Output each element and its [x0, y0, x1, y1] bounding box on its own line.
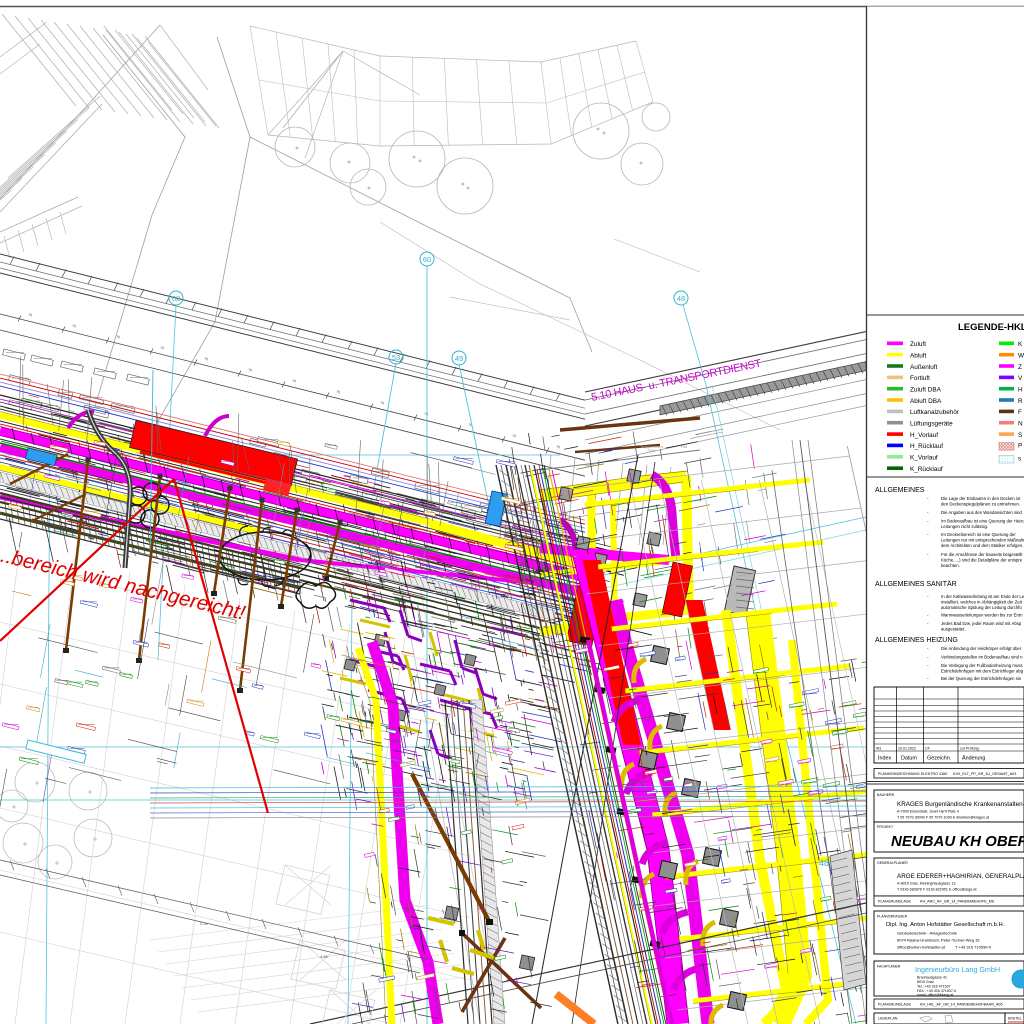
svg-text:H_Rücklauf: H_Rücklauf — [910, 443, 943, 450]
svg-text:K: K — [1018, 341, 1023, 348]
svg-text:ARGE EDERER+HAGHIRIAN, GENERAL: ARGE EDERER+HAGHIRIAN, GENERALPLAN G — [897, 873, 1024, 880]
svg-text:Für die Anschlüsse der bauseit: Für die Anschlüsse der bauseits beigeste… — [941, 552, 1023, 557]
svg-text:Dipl. Ing. Anton Hofstätter Ge: Dipl. Ing. Anton Hofstätter Gesellschaft… — [886, 922, 1005, 928]
svg-text:A-8010 Graz, Reininghausgasse: A-8010 Graz, Reininghausgasse 13 — [897, 882, 955, 886]
svg-text:Gebäudetechnik - Anlagentechni: Gebäudetechnik - Anlagentechnik — [897, 931, 957, 936]
svg-text:V: V — [1018, 375, 1023, 382]
svg-text:Zuluft: Zuluft — [910, 341, 926, 348]
svg-text:Die Lage der Einbauten in den: Die Lage der Einbauten in den Decken ist — [941, 496, 1021, 501]
svg-text:W1: W1 — [876, 747, 881, 751]
svg-text:H_Vorlauf: H_Vorlauf — [910, 432, 938, 439]
svg-text:automatische Spülung der Leitu: automatische Spülung der Leitung durchfü — [941, 605, 1022, 610]
svg-text:LAGEPLAN: LAGEPLAN — [878, 1017, 898, 1021]
svg-text:T +43 316 710590-0: T +43 316 710590-0 — [955, 945, 992, 950]
svg-text:GENERALPLANER: GENERALPLANER — [877, 861, 908, 865]
svg-text:A-7000 Eisenstadt, Josef Hyrtl: A-7000 Eisenstadt, Josef Hyrtl Platz 4 — [897, 810, 959, 814]
svg-text:49: 49 — [455, 354, 463, 363]
svg-text:Bei der Querung der Estrichdeh: Bei der Querung der Estrichdehnfugen sin — [941, 676, 1022, 681]
svg-text:Leitungen nur mit entsprechend: Leitungen nur mit entsprechenden Maßnahm — [941, 537, 1024, 542]
svg-text:LEGENDE-HKLS: LEGENDE-HKLS — [958, 322, 1024, 333]
svg-text:Jedes Bad bzw. jeder Raum wird: Jedes Bad bzw. jeder Raum wird mit Absp — [941, 621, 1022, 626]
svg-text:53: 53 — [392, 353, 400, 362]
svg-text:Luftkanalzubehör: Luftkanalzubehör — [910, 409, 960, 416]
svg-text:dem Architekten und dem Statik: dem Architekten und dem Statiker erfolge… — [941, 543, 1023, 548]
svg-text:R: R — [1018, 398, 1023, 405]
svg-text:ALLGEMEINES: ALLGEMEINES — [875, 487, 925, 494]
svg-text:W: W — [1018, 353, 1024, 360]
svg-text:CF: CF — [925, 747, 931, 751]
svg-text:K_Rücklauf: K_Rücklauf — [910, 466, 943, 473]
svg-text:Verbindungsstellen im Bodenauf: Verbindungsstellen im Bodenaufbau sind n — [941, 655, 1023, 660]
svg-text:P: P — [1018, 443, 1022, 450]
svg-text:2.34: 2.34 — [200, 921, 209, 926]
svg-text:ERSTEL: ERSTEL — [1008, 1017, 1022, 1021]
svg-text:ALLGEMEINES HEIZUNG: ALLGEMEINES HEIZUNG — [875, 637, 958, 644]
svg-text:s: s — [1018, 456, 1021, 463]
svg-text:Küche, ...) sind die Detailplä: Küche, ...) sind die Detailpläne der ent… — [941, 557, 1023, 562]
svg-text:Abluft: Abluft — [910, 353, 927, 360]
svg-text:ausgestattet.: ausgestattet. — [941, 626, 966, 631]
svg-text:48: 48 — [819, 858, 829, 868]
svg-text:Z: Z — [1018, 364, 1022, 371]
svg-text:Die Angaben aus den Wandansich: Die Angaben aus den Wandansichten sind — [941, 510, 1022, 515]
svg-text:K_Vorlauf: K_Vorlauf — [910, 455, 938, 462]
svg-text:N: N — [1018, 421, 1023, 428]
svg-text:Fortluft: Fortluft — [910, 375, 930, 382]
svg-text:Estrichdehnfugen mit dem Estri: Estrichdehnfugen mit dem Estrichleger ab… — [941, 668, 1024, 673]
svg-text:Leitungen nicht zulässig.: Leitungen nicht zulässig. — [941, 524, 988, 529]
svg-text:Brauhausgasse 41: Brauhausgasse 41 — [917, 976, 947, 980]
svg-text:62: 62 — [172, 294, 180, 303]
svg-text:Warmwasserleitungen werden bis: Warmwasserleitungen werden bis zur Entn — [941, 613, 1023, 618]
svg-text:Datum: Datum — [901, 756, 917, 762]
svg-text:H: H — [1018, 387, 1023, 394]
svg-text:8074 Raaba-Grambach, Peter-Tun: 8074 Raaba-Grambach, Peter-Tunner-Weg 15 — [897, 938, 980, 943]
svg-text:Die Verlegung der Fußbodenheiz: Die Verlegung der Fußbodenheizung muss — [941, 663, 1023, 668]
svg-text:PLANKENNZEICHNUNG ELEKTRO 4160: PLANKENNZEICHNUNG ELEKTRO 4160 — [878, 772, 947, 776]
svg-text:Ingenieurbüro Lang GmbH: Ingenieurbüro Lang GmbH — [915, 965, 1000, 974]
svg-text:4.56: 4.56 — [320, 954, 329, 959]
svg-text:Treppenhaus: Treppenhaus — [640, 444, 663, 449]
svg-text:BAUHERR: BAUHERR — [877, 793, 895, 797]
svg-text:PLANGRUNDLAGE: PLANGRUNDLAGE — [878, 900, 912, 904]
svg-text:email: office@iblang.at: email: office@iblang.at — [917, 993, 953, 997]
svg-text:Zuluft DBA: Zuluft DBA — [910, 387, 942, 394]
svg-text:F: F — [1018, 409, 1022, 416]
svg-text:KH_HKL_AF_GR_14_PANDEMIEHOFBAH: KH_HKL_AF_GR_14_PANDEMIEHOFBAHN_A05 — [920, 1003, 1003, 1007]
svg-text:Abluft DBA: Abluft DBA — [910, 398, 942, 405]
svg-text:office@anton-hofstaetter.at: office@anton-hofstaetter.at — [897, 945, 946, 950]
svg-text:In der Kaltwasserleitung ist a: In der Kaltwasserleitung ist am Ende der… — [941, 594, 1024, 599]
svg-text:Tel.: +43 316 471537: Tel.: +43 316 471537 — [917, 985, 951, 989]
svg-text:NEUBAU KH OBERW: NEUBAU KH OBERW — [891, 833, 1024, 850]
svg-text:Im Deckenbereich ist eine Quer: Im Deckenbereich ist eine Querung der — [941, 532, 1016, 537]
svg-text:Lüftungsgeräte: Lüftungsgeräte — [910, 421, 953, 428]
svg-text:PLANVERFASSER: PLANVERFASSER — [877, 915, 908, 919]
svg-text:Im Bodenaufbau ist eine Querun: Im Bodenaufbau ist eine Querung der Heiz… — [941, 519, 1024, 524]
svg-text:10.01.2022: 10.01.2022 — [898, 747, 916, 751]
svg-text:installiert, welches in Abhäng: installiert, welches in Abhängigkeit der… — [941, 599, 1023, 604]
svg-text:T 0316-682876 F 0316-8229: T 0316-682876 F 0316-822951 E office@arg… — [897, 888, 976, 892]
svg-text:Außenluft: Außenluft — [910, 364, 938, 371]
svg-text:S: S — [1018, 432, 1022, 439]
svg-text:ALLGEMEINES SANITÄR: ALLGEMEINES SANITÄR — [875, 580, 957, 588]
svg-text:Änderung: Änderung — [962, 755, 985, 762]
svg-text:KRAGES Burgenländische Kranken: KRAGES Burgenländische Krankenanstalten-… — [897, 801, 1024, 808]
svg-text:den Deckenspiegelplänen zu ent: den Deckenspiegelplänen zu entnehmen. — [941, 501, 1020, 506]
svg-text:beachten.: beachten. — [941, 563, 960, 568]
svg-text:T 05 7979 30000 F 05 7979: T 05 7979 30000 F 05 7979 1099 E direkti… — [897, 816, 989, 820]
svg-text:60: 60 — [423, 255, 431, 264]
svg-text:zur Prüfung: zur Prüfung — [960, 747, 979, 751]
svg-text:Die Anbindung der Heizkörper e: Die Anbindung der Heizkörper erfolgt übe… — [941, 646, 1022, 651]
svg-text:FACHPLANER: FACHPLANER — [877, 965, 901, 969]
svg-text:Index: Index — [878, 756, 891, 762]
svg-text:48: 48 — [677, 294, 685, 303]
svg-text:8010 Graz: 8010 Graz — [917, 980, 934, 984]
svg-text:KH_ARC_AF_GR_14_PANDEMIEHOFE_M: KH_ARC_AF_GR_14_PANDEMIEHOFE_M6 — [920, 900, 994, 904]
svg-text:Gezeichn.: Gezeichn. — [927, 756, 951, 762]
svg-text:PLANGRUNDLAGE: PLANGRUNDLAGE — [878, 1003, 912, 1007]
svg-text:KXX_ELT_FP_GR_1U_GESAMT_A03: KXX_ELT_FP_GR_1U_GESAMT_A03 — [953, 772, 1016, 776]
svg-text:PROJEKT: PROJEKT — [877, 825, 894, 829]
